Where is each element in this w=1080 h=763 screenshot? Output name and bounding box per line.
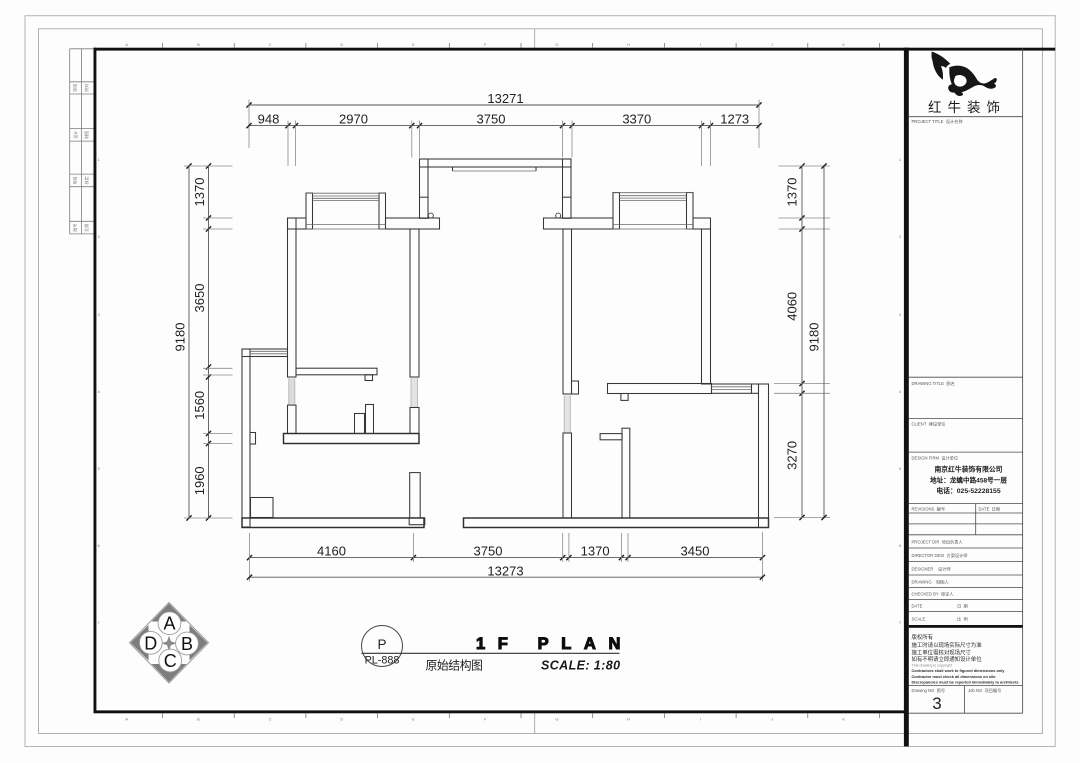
svg-text:REVISIONS 编号: REVISIONS 编号	[912, 506, 946, 513]
svg-text:3450: 3450	[681, 543, 710, 558]
svg-text:施工单位需核对现场尺寸: 施工单位需核对现场尺寸	[912, 649, 972, 657]
svg-text:I: I	[700, 42, 701, 47]
svg-text:J: J	[771, 717, 773, 722]
svg-text:Discrepancies must be reported: Discrepancies must be reported immediate…	[912, 680, 1019, 685]
svg-text:H: H	[627, 42, 630, 47]
svg-text:4: 4	[98, 389, 101, 394]
svg-text:G: G	[555, 42, 558, 47]
svg-text:7: 7	[899, 620, 902, 625]
svg-text:1370: 1370	[785, 178, 800, 207]
svg-text:9180: 9180	[173, 323, 188, 352]
svg-text:DATE: DATE	[912, 604, 923, 609]
svg-text:南京红牛装饰有限公司: 南京红牛装饰有限公司	[935, 465, 1003, 474]
svg-text:1960: 1960	[192, 466, 207, 495]
svg-text:7: 7	[98, 620, 101, 625]
svg-text:Drawing NO 图号: Drawing NO 图号	[912, 688, 946, 694]
svg-text:2970: 2970	[339, 111, 368, 126]
svg-text:C: C	[269, 42, 272, 47]
svg-text:F: F	[484, 717, 487, 722]
svg-text:C: C	[164, 651, 177, 671]
svg-text:施工时请以现场实际尺寸为准: 施工时请以现场实际尺寸为准	[912, 641, 983, 649]
svg-text:6: 6	[899, 543, 902, 548]
svg-text:K: K	[842, 42, 845, 47]
svg-text:1: 1	[899, 157, 902, 162]
svg-text:This drawing is copyright: This drawing is copyright	[912, 664, 953, 668]
svg-text:图号: 图号	[72, 224, 78, 232]
svg-text:K: K	[842, 717, 845, 722]
svg-text:A: A	[125, 42, 128, 47]
svg-text:原始结构图: 原始结构图	[426, 659, 483, 673]
svg-text:3270: 3270	[785, 441, 800, 470]
svg-text:D: D	[340, 42, 343, 47]
svg-text:比例: 比例	[83, 224, 89, 232]
svg-text:3: 3	[932, 694, 941, 713]
svg-text:I: I	[700, 717, 701, 722]
svg-text:5: 5	[899, 466, 902, 471]
svg-text:E: E	[412, 42, 415, 47]
svg-text:13271: 13271	[487, 91, 523, 106]
svg-text:红牛装饰: 红牛装饰	[928, 100, 1006, 115]
svg-text:审核: 审核	[72, 84, 78, 92]
svg-text:B: B	[181, 634, 193, 654]
svg-text:A: A	[163, 614, 175, 634]
svg-text:日 期: 日 期	[957, 604, 968, 610]
svg-text:948: 948	[258, 111, 280, 126]
svg-text:B: B	[197, 42, 200, 47]
svg-text:1560: 1560	[192, 391, 207, 420]
svg-text:Contractors shall work to figu: Contractors shall work to figured dimens…	[912, 668, 1006, 673]
svg-text:CHECKED BY 审定人: CHECKED BY 审定人	[912, 591, 955, 598]
svg-text:G: G	[555, 717, 558, 722]
svg-text:电话：025-52228155: 电话：025-52228155	[936, 486, 1000, 495]
svg-text:3: 3	[98, 312, 101, 317]
svg-text:1370: 1370	[581, 543, 610, 558]
svg-text:9180: 9180	[807, 323, 822, 352]
svg-text:3: 3	[899, 312, 902, 317]
svg-text:H: H	[627, 717, 630, 722]
svg-text:PROJECT DIR 项目负责人: PROJECT DIR 项目负责人	[912, 539, 964, 546]
svg-text:2: 2	[899, 234, 902, 239]
svg-text:D: D	[144, 633, 157, 653]
svg-text:A: A	[125, 717, 128, 722]
svg-text:设计: 设计	[72, 131, 78, 139]
svg-text:F: F	[484, 42, 487, 47]
svg-text:CLIENT 建设单位: CLIENT 建设单位	[912, 421, 946, 428]
svg-text:Job NO 项目编号: Job NO 项目编号	[968, 687, 1001, 694]
svg-text:DESIGNER 设计师: DESIGNER 设计师	[912, 566, 951, 573]
svg-text:核定: 核定	[83, 176, 89, 184]
svg-text:3750: 3750	[477, 111, 506, 126]
svg-text:1370: 1370	[192, 178, 207, 207]
svg-text:4160: 4160	[317, 543, 346, 558]
svg-text:地址：龙蠄中路458号一层: 地址：龙蠄中路458号一层	[930, 476, 1007, 485]
svg-text:SCALE: 1:80: SCALE: 1:80	[541, 659, 620, 673]
svg-text:比 例: 比 例	[957, 616, 968, 623]
svg-text:版权所有: 版权所有	[912, 633, 934, 641]
svg-text:C: C	[269, 717, 272, 722]
svg-text:6: 6	[98, 543, 101, 548]
svg-text:D: D	[340, 717, 343, 722]
svg-text:1: 1	[98, 157, 101, 162]
svg-text:3650: 3650	[192, 284, 207, 313]
svg-text:PROJECT TITLE 设计名称: PROJECT TITLE 设计名称	[912, 118, 963, 125]
svg-text:E: E	[412, 717, 415, 722]
svg-text:B: B	[197, 717, 200, 722]
svg-text:如有不明请立即通知设计单位: 如有不明请立即通知设计单位	[912, 655, 983, 663]
svg-text:DRAWING 制图人: DRAWING 制图人	[912, 579, 950, 586]
svg-text:1273: 1273	[720, 111, 749, 126]
svg-text:Contractor must check all dime: Contractor must check all dimensions on …	[912, 674, 997, 679]
svg-text:3370: 3370	[622, 111, 651, 126]
svg-text:制图: 制图	[83, 131, 89, 139]
svg-text:DESIGN FIRM 设计单位: DESIGN FIRM 设计单位	[912, 455, 959, 462]
svg-text:PL-888: PL-888	[365, 655, 400, 667]
svg-text:4: 4	[899, 389, 902, 394]
svg-text:1F PLAN: 1F PLAN	[476, 635, 633, 653]
svg-text:DRAWING TITLE 图名: DRAWING TITLE 图名	[912, 380, 955, 387]
svg-text:J: J	[771, 42, 773, 47]
svg-text:SCALE: SCALE	[912, 617, 926, 622]
svg-text:P: P	[377, 637, 386, 652]
svg-text:DIRECTOR DESI 方案设计师: DIRECTOR DESI 方案设计师	[912, 552, 968, 559]
svg-text:5: 5	[98, 466, 101, 471]
svg-text:3750: 3750	[474, 543, 503, 558]
svg-text:校对: 校对	[83, 84, 89, 92]
svg-text:DATE 日期: DATE 日期	[979, 507, 1001, 513]
svg-text:13273: 13273	[487, 563, 523, 578]
svg-text:2: 2	[98, 234, 101, 239]
svg-text:项目: 项目	[72, 176, 78, 184]
svg-text:4060: 4060	[785, 292, 800, 321]
